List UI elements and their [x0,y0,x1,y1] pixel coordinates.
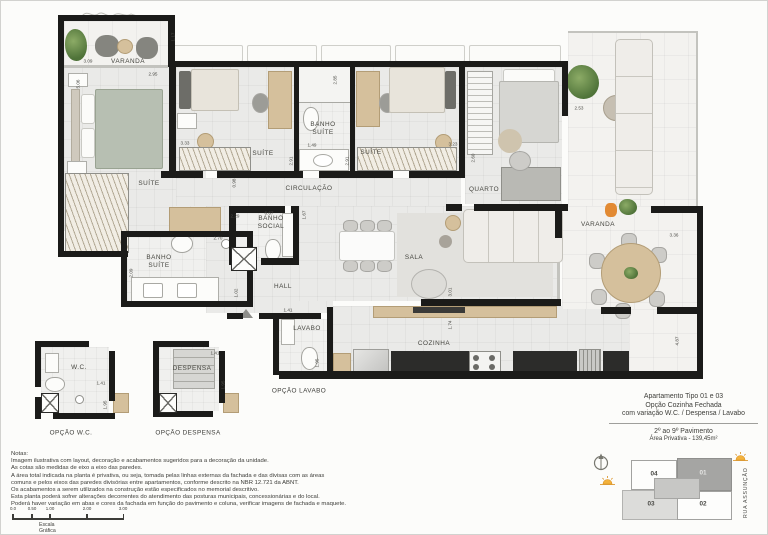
wall [327,307,333,375]
scale-tick [86,514,88,519]
wall [161,171,203,178]
sink [177,283,197,298]
wall [279,371,703,379]
shower-box [299,67,350,103]
wall [217,171,303,178]
title-line-1: Apartamento Tipo 01 e 03 [601,393,766,402]
armchair-swivel [411,269,447,299]
title-line-3: com variação W.C. / Despensa / Lavabo [601,410,766,419]
dimension: 1.95 [315,359,320,368]
sink [45,353,59,373]
wardrobe [179,147,251,171]
chair [343,260,358,272]
room-label-cozinha: COZINHA [418,340,450,348]
dining-chair [591,289,607,305]
room-label-varanda-left: VARANDA [111,58,145,66]
scale-tick [123,514,125,519]
wall [474,204,568,211]
tv [413,307,465,313]
room-label-banho-social: BANHO SOCIAL [258,215,284,231]
side-table [445,215,461,231]
wall [227,313,243,319]
keyplan-label-01: 01 [699,470,706,477]
plant [567,65,599,99]
pillow-dark [179,71,191,109]
area-privativa-line: Área Privativa - 139,45m² [601,436,766,444]
burner [489,364,495,370]
dimension: 2.29 [231,214,240,219]
scale-baseline [12,518,124,520]
keyplan-label-02: 02 [699,501,706,508]
round-rug [498,129,522,153]
room-label-banho-suite: BANHO SUÍTE [310,121,335,137]
shaft [159,393,177,413]
north-compass-icon [591,452,611,472]
scale-tick [12,514,14,519]
room-label-lavabo: LAVABO [293,325,321,333]
wall [319,171,393,178]
dimension: 1.17 [171,33,176,42]
dimension: 1.95 [221,381,226,390]
notes-line: comuns e pelos eixos das paredes divisór… [11,480,381,487]
dimension: 3.33 [181,141,190,146]
wall [219,351,225,403]
facade-ledge [321,45,391,62]
armchair [136,37,158,59]
desk [356,71,380,127]
room-label-sala: SALA [405,254,423,262]
dimension: 2.70 [214,236,223,241]
shower-head [75,395,84,404]
side-table [439,235,452,248]
room-label-suite-master: SUÍTE [138,180,159,188]
railing-varanda-top [568,31,698,33]
armchair [95,35,119,57]
facade-ledge [469,45,561,62]
notes-line: Imagem ilustrativa com layout, decoração… [11,458,381,465]
wall [109,351,115,401]
sun-icon [599,475,616,487]
room-label-suite-2: SUÍTE [252,150,273,158]
wall [259,313,321,319]
scale-tick [31,514,33,519]
wall [459,61,465,177]
burner [473,364,479,370]
notes-title: Notas: [11,451,381,458]
keyplan-core [654,478,700,499]
cabinet [113,393,129,413]
sink [313,154,333,167]
keyplan-label-03: 03 [647,501,654,508]
wall [446,204,462,211]
bed-master [95,89,163,169]
wall [293,206,299,265]
railing-varanda-right [696,31,698,207]
room-label-suite-3: SUÍTE [360,149,381,157]
room-label-circulacao: CIRCULAÇÃO [286,185,333,193]
caption-opcao-wc: OPÇÃO W.C. [50,430,93,437]
wall [121,301,253,307]
notes-line: Os acabamentos a serem utilizados na con… [11,487,381,494]
bed-headboard [71,89,80,169]
wall [35,341,89,347]
room-label-quarto: QUARTO [469,186,499,194]
wall [168,61,568,67]
sofa [463,209,563,263]
caption-opcao-despensa: OPÇÃO DESPENSA [155,430,220,437]
wall [229,206,285,213]
dimension: 3.23 [449,142,458,147]
floor-varanda-right-lower [629,309,697,373]
dimension: 2.53 [575,106,584,111]
tv-console [373,306,557,318]
facade-ledge [395,45,465,62]
floor-plan-page: VARANDA SUÍTE SUÍTE SUÍTE BANHO SUÍTE BA… [0,0,768,535]
cabinet [333,353,351,373]
room-label-wc: W.C. [71,364,87,372]
desk-chair [252,93,269,113]
street-label: RUA ASSUNÇÃO [743,467,749,518]
sun-icon [732,451,749,463]
room-label-banho-suite-master: BANHO SUÍTE [146,254,171,270]
wall [53,413,115,419]
wall [35,341,41,387]
dimension: 2.95 [149,72,158,77]
room-label-hall: HALL [274,283,292,291]
chair [377,260,392,272]
dimension: 1.41 [211,351,220,356]
toilet [171,235,193,253]
wall [651,206,701,213]
dimension: 6.67 [265,211,274,216]
dimension: 2.60 [471,154,476,163]
scale-tick-label: 0.0 [10,506,16,511]
notes-line: As cotas são medidas de eixo a eixo das … [11,465,381,472]
shaft [41,393,59,413]
wall [153,341,209,347]
wall [562,61,568,116]
dimension: 1.49 [308,143,317,148]
wall [58,15,64,257]
desk-chair [509,151,531,171]
dimension: 3.09 [84,59,93,64]
pillow [81,128,95,158]
dimension: 2.09 [129,269,134,278]
notes-block: Notas: Imagem ilustrativa com layout, de… [11,451,381,509]
toilet [45,377,65,392]
side-table [117,39,133,54]
dimension: 3.36 [670,233,679,238]
wall [697,206,703,379]
scale-tick-label: 2.00 [83,506,92,511]
sink [143,283,163,298]
wall [121,231,253,237]
dimension: 1.02 [234,289,239,298]
shaft [231,247,257,271]
scale-tick [49,514,51,519]
room-label-despensa: DESPENSA [173,365,212,373]
facade-ledge [247,45,317,62]
sideboard [169,207,221,233]
wall [555,204,562,238]
dimension: 4.87 [675,337,680,346]
scale-tick-label: 0.50 [28,506,37,511]
wall [350,61,355,177]
pavimento-line: 2º ao 9º Pavimento [601,428,766,436]
desk [501,167,561,201]
wall [169,61,176,178]
scale-tick-label: 1.00 [46,506,55,511]
dimension: 1.67 [302,211,307,220]
plant-centerpiece [624,267,638,279]
dimension: 2.91 [345,157,350,166]
title-line-2: Opção Cozinha Fechada [601,402,766,411]
wall [409,171,465,178]
bed-suite-3 [389,67,445,113]
shelving [467,71,493,155]
wall-kitchen-half [421,299,561,306]
dimension: 0.98 [232,179,237,188]
bed-suite-2 [191,69,239,111]
pillow-dark [445,71,456,109]
room-label-varanda-right: VARANDA [581,221,615,229]
caption-opcao-lavabo: OPÇÃO LAVABO [272,388,326,395]
scale-label: Escala Gráfica [39,522,56,534]
keyplan-label-04: 04 [650,471,657,478]
cabinet [223,393,239,413]
notes-line: Esta planta poderá sofrer alterações dec… [11,494,381,501]
sofa-varanda [615,39,653,195]
wall [294,61,299,177]
wardrobe [65,173,129,253]
wall [273,313,279,375]
side-table [177,113,197,129]
wall [58,251,128,257]
dimension: 5.06 [76,80,81,89]
dimension: 1.95 [103,401,108,410]
scale-tick-label: 3.00 [119,506,128,511]
notes-line: A área total indicada na planta é privat… [11,473,381,480]
burner [473,355,479,361]
wall [657,307,701,314]
title-block: Apartamento Tipo 01 e 03 Opção Cozinha F… [601,393,766,444]
burner [489,355,495,361]
facade-ledge [173,45,243,62]
desk [268,71,292,129]
dimension: 2.91 [289,157,294,166]
dimension: 1.41 [284,308,293,313]
basket [605,203,617,217]
dining-table [339,231,395,261]
dimension: 1.41 [97,381,106,386]
title-divider [609,423,758,424]
plant [65,29,87,61]
pillow [81,94,95,124]
notes-line: Poderá haver variação em abas e cores da… [11,501,381,508]
wall [58,15,175,21]
wall [121,231,127,307]
plant [619,199,637,215]
dimension: 3.01 [448,288,453,297]
wall [601,307,631,314]
dimension: 1.74 [448,321,453,330]
dimension: 2.85 [333,76,338,85]
chair [360,260,375,272]
